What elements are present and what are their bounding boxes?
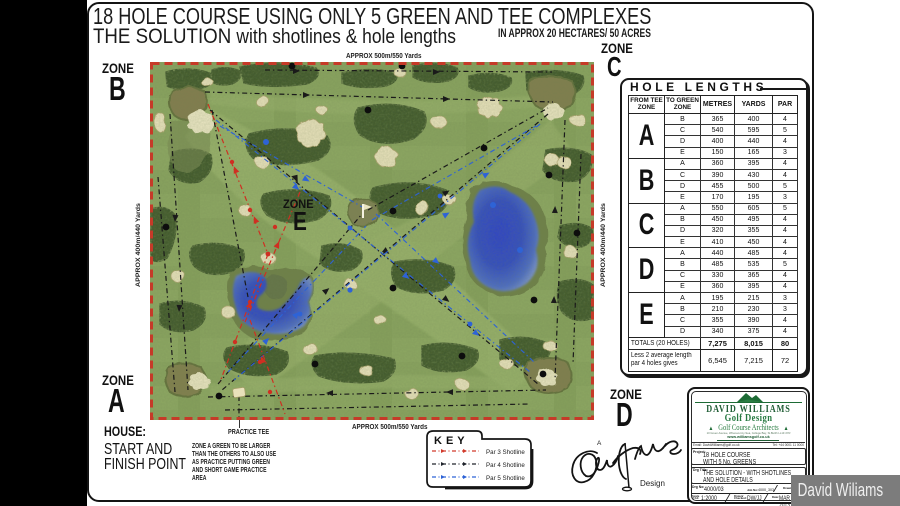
svg-text:KEY: KEY (434, 435, 469, 447)
svg-text:Par 4 Shotline: Par 4 Shotline (486, 462, 525, 469)
svg-text:Design: Design (640, 479, 665, 488)
svg-text:A: A (597, 440, 602, 447)
svg-text:E: E (293, 207, 307, 236)
svg-text:Par 3 Shotline: Par 3 Shotline (486, 449, 525, 456)
svg-text:Par 5 Shotline: Par 5 Shotline (486, 475, 525, 482)
